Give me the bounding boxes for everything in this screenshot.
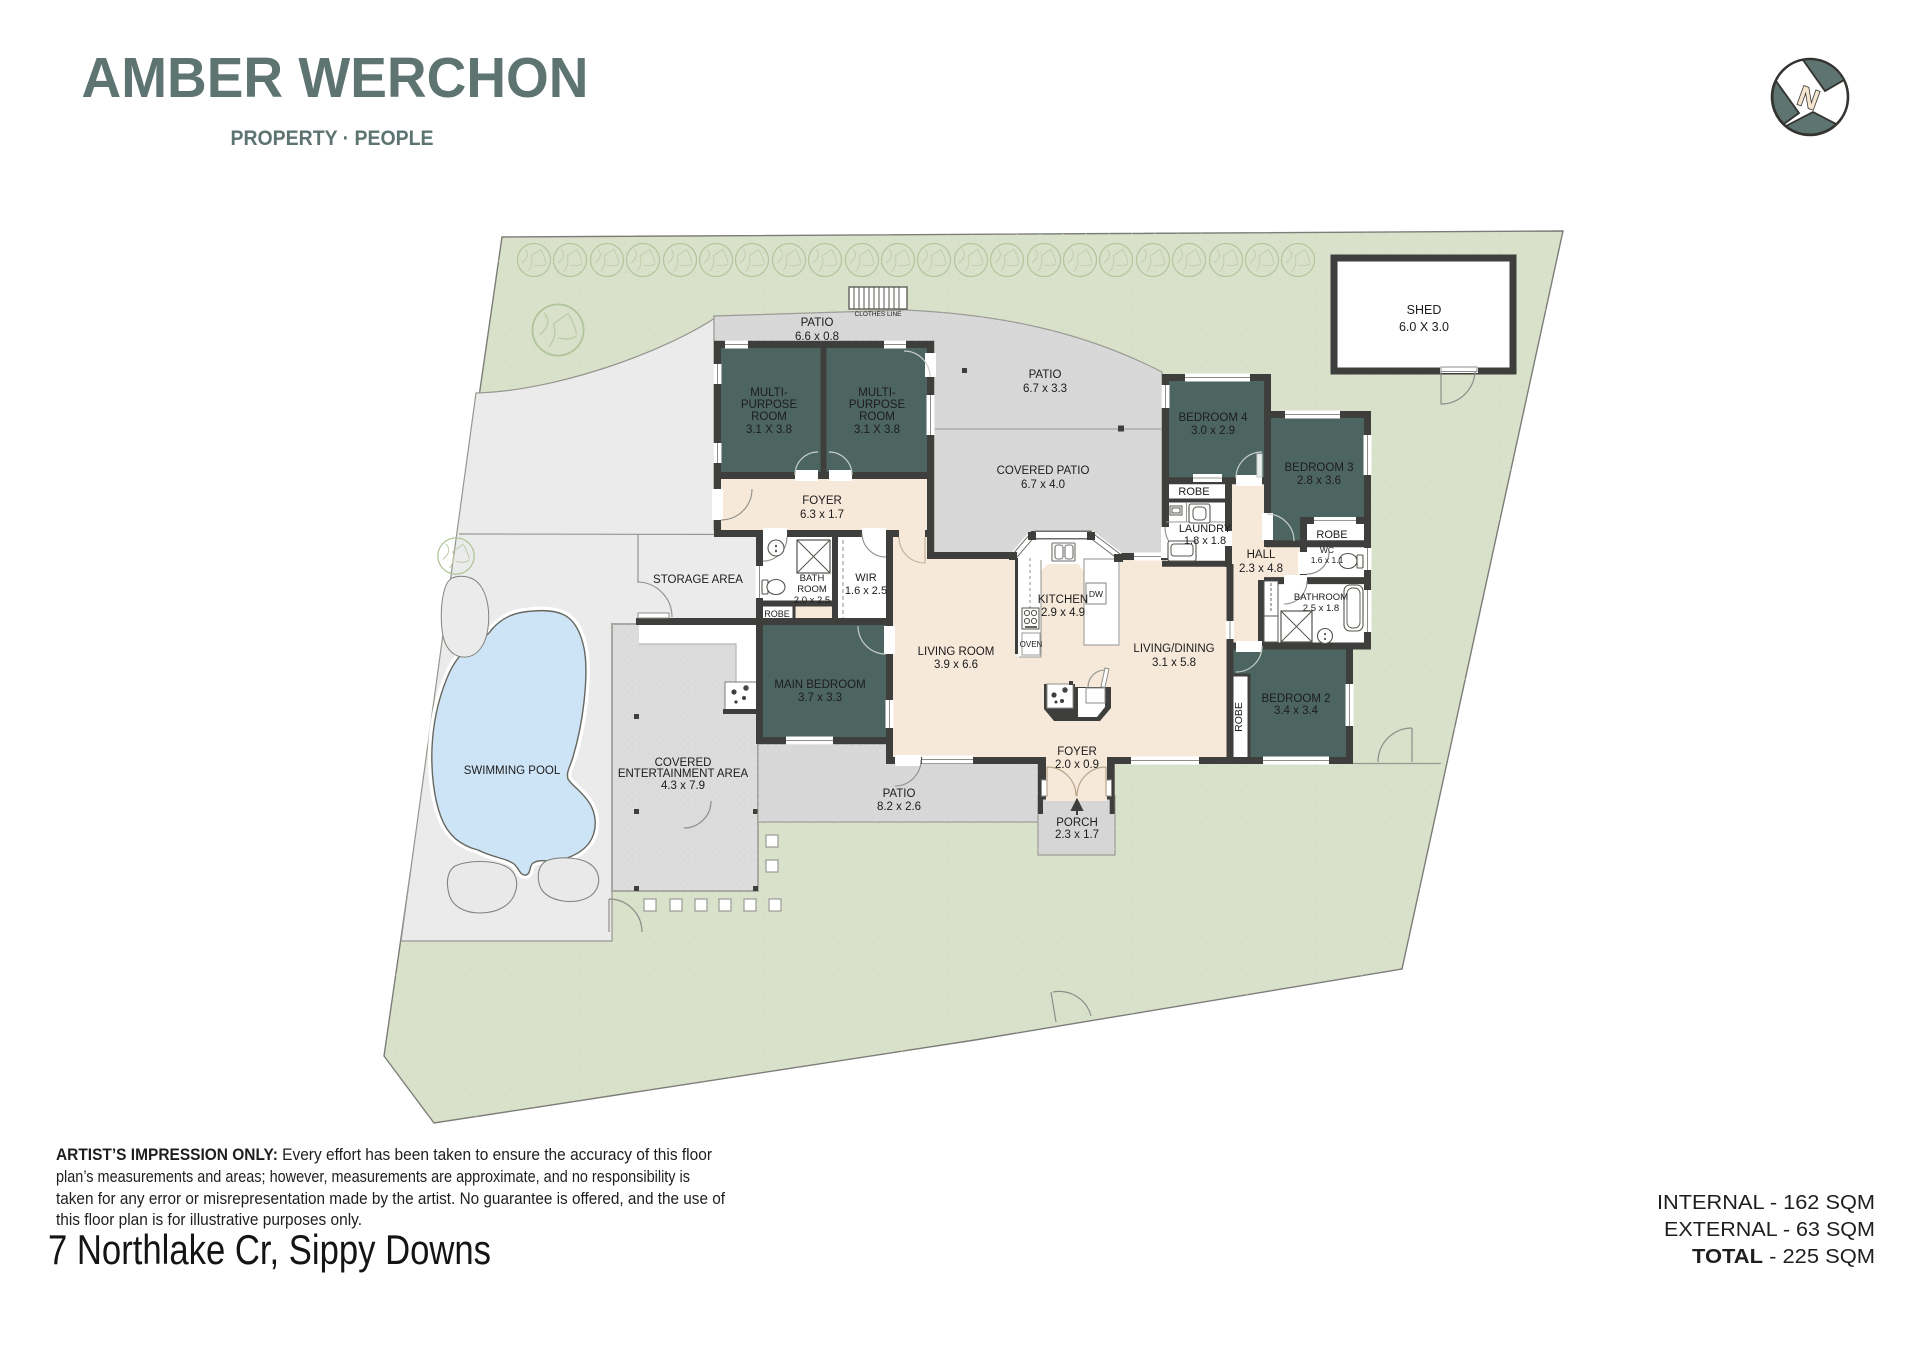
svg-text:BATHROOM: BATHROOM — [1294, 592, 1348, 603]
svg-text:OVEN: OVEN — [1020, 640, 1043, 649]
svg-text:2.8 x 3.6: 2.8 x 3.6 — [1297, 475, 1341, 487]
svg-text:ROOM: ROOM — [859, 411, 895, 423]
svg-text:ENTERTAINMENT AREA: ENTERTAINMENT AREA — [618, 768, 749, 780]
svg-text:ROOM: ROOM — [797, 584, 827, 595]
svg-text:plan’s measurements and areas;: plan’s measurements and areas; however, … — [56, 1167, 690, 1186]
svg-text:LAUNDRY: LAUNDRY — [1179, 523, 1232, 535]
svg-text:3.1 X 3.8: 3.1 X 3.8 — [746, 424, 792, 436]
svg-text:STORAGE AREA: STORAGE AREA — [653, 574, 743, 586]
svg-text:SWIMMING POOL: SWIMMING POOL — [464, 765, 561, 777]
svg-text:3.0 x 2.9: 3.0 x 2.9 — [1191, 425, 1235, 437]
svg-text:PORCH: PORCH — [1056, 817, 1098, 829]
svg-text:7 Northlake Cr, Sippy Downs: 7 Northlake Cr, Sippy Downs — [48, 1226, 491, 1273]
svg-text:ROBE: ROBE — [1233, 702, 1245, 732]
svg-text:EXTERNAL - 63 SQM: EXTERNAL - 63 SQM — [1664, 1218, 1875, 1241]
svg-text:2.9 x 4.9: 2.9 x 4.9 — [1041, 607, 1085, 619]
svg-text:ROBE: ROBE — [764, 609, 790, 619]
svg-text:SHED: SHED — [1407, 303, 1442, 317]
svg-text:ROBE: ROBE — [1178, 486, 1209, 498]
svg-text:BEDROOM 3: BEDROOM 3 — [1284, 462, 1353, 474]
svg-text:1.8 x 1.8: 1.8 x 1.8 — [1184, 535, 1226, 547]
svg-text:PATIO: PATIO — [1029, 369, 1062, 381]
svg-text:AMBER WERCHON: AMBER WERCHON — [82, 46, 589, 110]
svg-text:MAIN BEDROOM: MAIN BEDROOM — [774, 679, 865, 691]
svg-text:2.0 x 0.9: 2.0 x 0.9 — [1055, 759, 1099, 771]
svg-text:6.7 x 3.3: 6.7 x 3.3 — [1023, 383, 1067, 395]
svg-text:8.2 x 2.6: 8.2 x 2.6 — [877, 801, 921, 813]
svg-text:2.0 x 2.5: 2.0 x 2.5 — [794, 595, 830, 606]
svg-text:6.7 x 4.0: 6.7 x 4.0 — [1021, 479, 1065, 491]
svg-text:MULTI-: MULTI- — [858, 387, 896, 399]
svg-text:3.1 x 5.8: 3.1 x 5.8 — [1152, 657, 1196, 669]
svg-text:KITCHEN: KITCHEN — [1038, 594, 1088, 606]
svg-text:BEDROOM 4: BEDROOM 4 — [1178, 412, 1248, 424]
svg-text:6.0 X 3.0: 6.0 X 3.0 — [1399, 320, 1449, 334]
svg-text:1.6 x 1.1: 1.6 x 1.1 — [1311, 555, 1344, 565]
svg-text:WIR: WIR — [855, 572, 876, 584]
svg-text:1.6 x 2.5: 1.6 x 2.5 — [845, 585, 887, 597]
svg-text:PROPERTY · PEOPLE: PROPERTY · PEOPLE — [231, 126, 434, 150]
svg-text:WC: WC — [1320, 545, 1334, 555]
svg-text:taken for any error or misrepr: taken for any error or misrepresentation… — [56, 1189, 725, 1208]
svg-text:HALL: HALL — [1247, 549, 1276, 561]
svg-text:TOTAL - 225 SQM: TOTAL - 225 SQM — [1692, 1245, 1875, 1268]
svg-text:CLOTHES LINE: CLOTHES LINE — [855, 311, 903, 318]
svg-text:FOYER: FOYER — [802, 495, 842, 507]
svg-text:3.1 X 3.8: 3.1 X 3.8 — [854, 424, 900, 436]
svg-text:2.5 x 1.8: 2.5 x 1.8 — [1303, 603, 1339, 614]
svg-text:2.3 x 4.8: 2.3 x 4.8 — [1239, 563, 1283, 575]
svg-text:ARTIST’S IMPRESSION ONLY: Ever: ARTIST’S IMPRESSION ONLY: Every effort h… — [56, 1145, 712, 1164]
svg-text:3.7 x 3.3: 3.7 x 3.3 — [798, 692, 842, 704]
svg-text:LIVING/DINING: LIVING/DINING — [1133, 643, 1214, 655]
svg-text:6.3 x 1.7: 6.3 x 1.7 — [800, 509, 844, 521]
svg-text:ROOM: ROOM — [751, 411, 787, 423]
svg-text:BATH: BATH — [800, 573, 825, 584]
svg-text:2.3 x 1.7: 2.3 x 1.7 — [1055, 829, 1099, 841]
svg-text:3.4 x 3.4: 3.4 x 3.4 — [1274, 705, 1319, 717]
svg-text:COVERED PATIO: COVERED PATIO — [997, 465, 1090, 477]
svg-text:FOYER: FOYER — [1057, 746, 1097, 758]
svg-text:PURPOSE: PURPOSE — [849, 399, 906, 411]
svg-text:6.6 x 0.8: 6.6 x 0.8 — [795, 331, 839, 343]
svg-text:LIVING ROOM: LIVING ROOM — [918, 646, 995, 658]
svg-text:PATIO: PATIO — [801, 317, 834, 329]
svg-text:4.3 x 7.9: 4.3 x 7.9 — [661, 780, 705, 792]
svg-text:INTERNAL - 162 SQM: INTERNAL - 162 SQM — [1657, 1191, 1875, 1214]
svg-text:MULTI-: MULTI- — [750, 387, 788, 399]
svg-text:3.9 x 6.6: 3.9 x 6.6 — [934, 659, 978, 671]
svg-text:DW: DW — [1089, 589, 1103, 599]
svg-text:BEDROOM 2: BEDROOM 2 — [1261, 693, 1330, 705]
svg-text:ROBE: ROBE — [1316, 529, 1347, 541]
svg-text:PATIO: PATIO — [883, 788, 916, 800]
svg-text:PURPOSE: PURPOSE — [741, 399, 798, 411]
